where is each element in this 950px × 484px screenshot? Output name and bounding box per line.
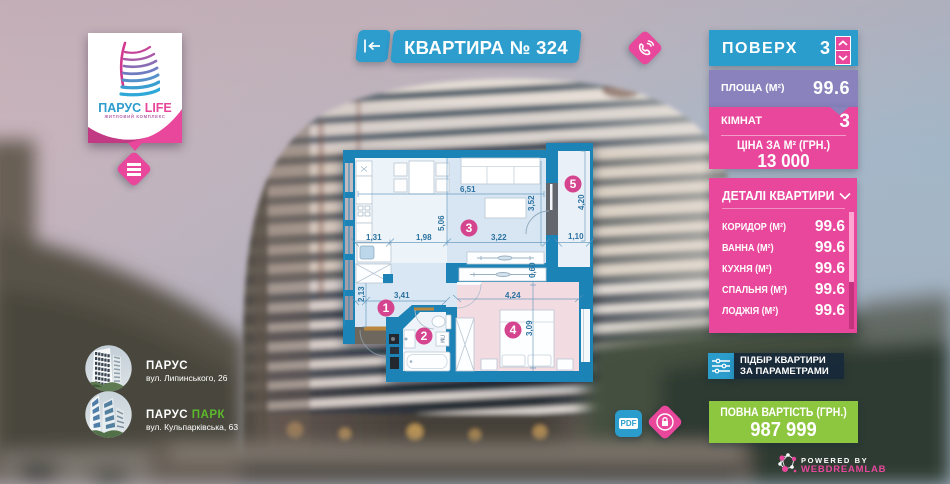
svg-text:3,22: 3,22 xyxy=(491,233,507,242)
svg-text:3: 3 xyxy=(466,221,473,235)
svg-text:4: 4 xyxy=(510,323,517,337)
svg-text:1,31: 1,31 xyxy=(366,233,382,242)
svg-text:1,10: 1,10 xyxy=(568,232,584,241)
svg-text:3,52: 3,52 xyxy=(527,195,536,211)
svg-text:6,51: 6,51 xyxy=(460,185,476,194)
svg-text:2: 2 xyxy=(421,329,428,343)
svg-text:ПМ: ПМ xyxy=(439,335,445,343)
svg-text:0,60: 0,60 xyxy=(528,262,537,278)
svg-text:2,13: 2,13 xyxy=(357,286,366,302)
svg-text:1: 1 xyxy=(383,301,390,315)
svg-text:3,41: 3,41 xyxy=(394,291,410,300)
svg-text:1,98: 1,98 xyxy=(416,233,432,242)
svg-text:5,06: 5,06 xyxy=(437,215,446,231)
svg-text:5: 5 xyxy=(570,177,577,191)
